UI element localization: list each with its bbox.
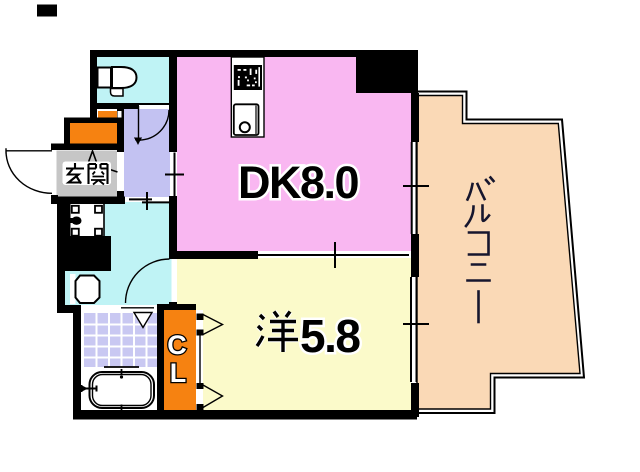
svg-text:C: C [167,330,187,360]
svg-text:L: L [170,358,187,388]
svg-text:DK8.0: DK8.0 [238,157,359,208]
svg-text:5.8: 5.8 [300,310,360,362]
